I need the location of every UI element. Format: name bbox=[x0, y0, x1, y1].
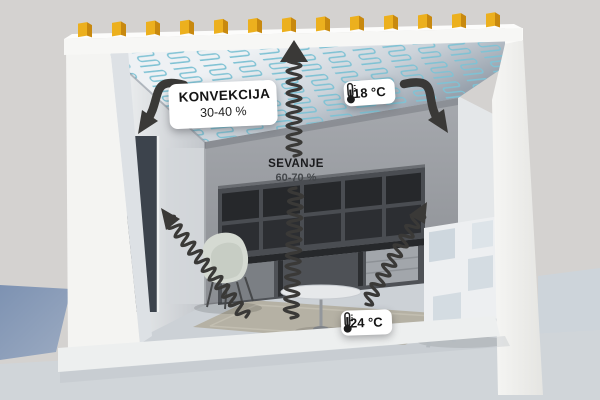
scene-svg bbox=[0, 0, 600, 400]
joist-block bbox=[418, 14, 427, 29]
joist-block bbox=[180, 20, 189, 35]
shelf-cubby bbox=[222, 190, 259, 222]
joist-block bbox=[384, 15, 393, 30]
chair-shadow bbox=[194, 302, 262, 314]
table-stem bbox=[320, 295, 323, 329]
thermometer-icon bbox=[343, 81, 358, 106]
convection-label: KONVEKCIJA 30-40 % bbox=[168, 80, 278, 129]
joist-block bbox=[486, 12, 495, 27]
shelf-cubby bbox=[386, 173, 421, 205]
shelf-cubby bbox=[304, 213, 341, 245]
ceiling-temp-value: 18 °C bbox=[353, 84, 387, 101]
floor-temp-badge: 24 °C bbox=[341, 309, 393, 336]
shelf-cubby bbox=[345, 177, 382, 209]
shelf-cubby bbox=[345, 209, 382, 241]
cabinet-panel bbox=[472, 220, 493, 249]
joist-block bbox=[350, 16, 359, 31]
ceiling-temp-badge: 18 °C bbox=[343, 78, 395, 106]
wall-door-panel bbox=[166, 148, 206, 304]
cabinet-panel bbox=[468, 255, 493, 291]
joist-block bbox=[112, 21, 121, 36]
joist-block bbox=[452, 13, 461, 28]
chair-seat bbox=[211, 243, 243, 280]
cabinet-panel bbox=[429, 228, 455, 262]
joist-block bbox=[78, 22, 87, 37]
joist-block bbox=[282, 17, 291, 32]
shelf-cubby bbox=[304, 181, 341, 213]
joist-block bbox=[146, 21, 155, 36]
room-heating-diagram: KONVEKCIJA 30-40 % SEVANJE 60-70 % 18 °C… bbox=[0, 0, 600, 400]
joist-block bbox=[248, 18, 257, 33]
desk-leg bbox=[358, 252, 363, 287]
thermometer-icon bbox=[341, 310, 355, 334]
radiation-title: SEVANJE bbox=[257, 157, 335, 172]
radiation-label: SEVANJE 60-70 % bbox=[257, 157, 335, 185]
joist-block bbox=[214, 19, 223, 34]
floor-temp-value: 24 °C bbox=[350, 314, 383, 330]
radiation-value: 60-70 % bbox=[257, 172, 335, 185]
joist-block bbox=[316, 16, 325, 31]
shelf-cubby bbox=[263, 185, 300, 217]
